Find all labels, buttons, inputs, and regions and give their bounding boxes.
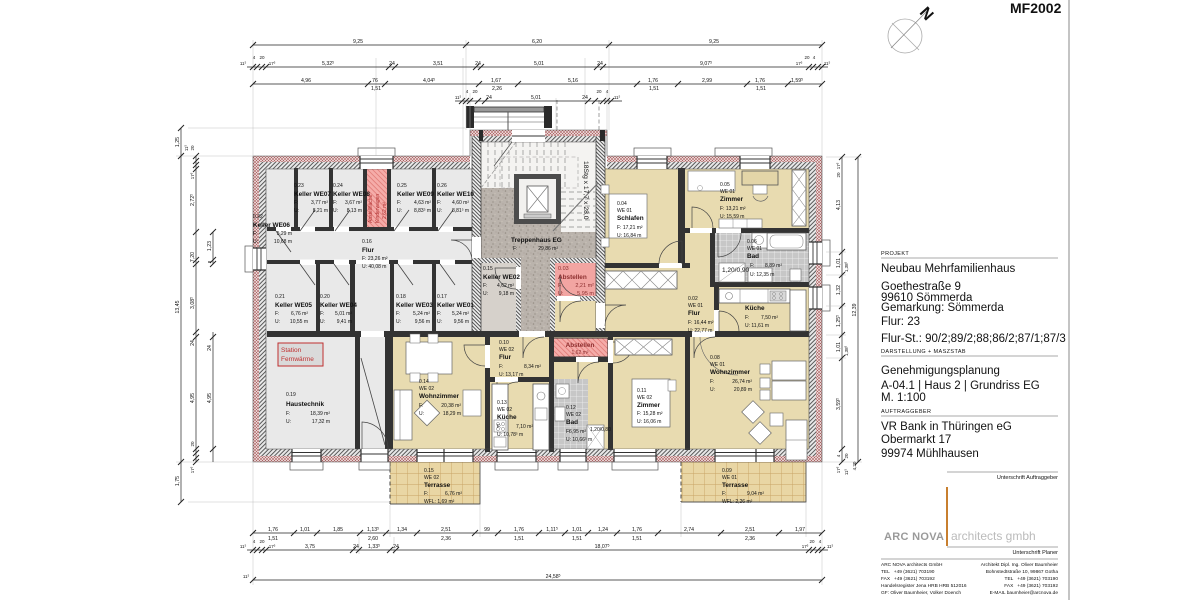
- svg-text:4,20: 4,20: [852, 461, 857, 470]
- svg-text:24: 24: [582, 95, 588, 101]
- svg-text:Fernwärme: Fernwärme: [281, 356, 314, 363]
- svg-text:12,39: 12,39: [852, 303, 858, 316]
- svg-text:F:: F:: [419, 403, 423, 409]
- svg-text:1,51: 1,51: [371, 86, 381, 92]
- svg-text:2,36: 2,36: [745, 536, 755, 542]
- svg-text:E-MAIL baumheier@arcnova.de: E-MAIL baumheier@arcnova.de: [990, 590, 1059, 596]
- svg-text:2,62 m²: 2,62 m²: [382, 202, 388, 219]
- svg-text:F:: F:: [513, 246, 517, 252]
- svg-text:U:: U:: [320, 319, 325, 325]
- svg-text:1,85: 1,85: [333, 527, 343, 533]
- svg-text:Abstellen: Abstellen: [566, 342, 595, 349]
- svg-text:1,20/0,80: 1,20/0,80: [590, 427, 611, 433]
- svg-text:1,20/0,90: 1,20/0,90: [722, 267, 749, 274]
- svg-text:20: 20: [836, 172, 841, 178]
- svg-text:U:: U:: [333, 208, 338, 214]
- svg-text:20,89 m: 20,89 m: [734, 387, 752, 393]
- svg-text:0.16: 0.16: [362, 239, 372, 245]
- svg-text:0.05: 0.05: [720, 182, 730, 188]
- svg-text:0.12: 0.12: [566, 405, 576, 411]
- svg-text:9,18 m: 9,18 m: [499, 291, 514, 297]
- svg-text:4,62 m²: 4,62 m²: [497, 283, 514, 289]
- svg-text:U: 16,06 m: U: 16,06 m: [637, 419, 661, 425]
- svg-text:76: 76: [372, 78, 378, 84]
- svg-text:0.22: 0.22: [253, 214, 263, 220]
- svg-text:U: 12,35 m: U: 12,35 m: [750, 272, 774, 278]
- svg-text:5,16: 5,16: [568, 78, 578, 84]
- svg-text:Terrasse: Terrasse: [722, 482, 749, 489]
- svg-text:WE 02: WE 02: [424, 475, 439, 481]
- svg-text:9,41 m: 9,41 m: [337, 319, 352, 325]
- svg-text:0.14: 0.14: [419, 379, 429, 385]
- svg-text:0.06: 0.06: [747, 239, 757, 245]
- svg-text:F:: F:: [396, 311, 400, 317]
- svg-text:1,97: 1,97: [795, 527, 805, 533]
- svg-text:U: 10,785 m: U: 10,785 m: [497, 431, 523, 438]
- svg-text:GF: Oliver Baumheier, Volker D: GF: Oliver Baumheier, Volker Doench: [881, 590, 961, 596]
- svg-text:8,815 m: 8,815 m: [452, 207, 469, 214]
- svg-text:Flur: Flur: [499, 354, 512, 361]
- svg-text:1,01: 1,01: [572, 527, 582, 533]
- svg-text:5,01 m²: 5,01 m²: [335, 311, 352, 317]
- svg-text:26,74 m²: 26,74 m²: [732, 379, 752, 385]
- svg-text:20: 20: [809, 539, 815, 544]
- svg-text:1,76: 1,76: [648, 78, 658, 84]
- svg-text:A-04.1 | Haus 2 | Grundriss EG: A-04.1 | Haus 2 | Grundriss EG: [881, 380, 1040, 392]
- svg-text:8,34 m²: 8,34 m²: [524, 364, 541, 370]
- svg-text:F:: F:: [745, 315, 749, 321]
- svg-text:6,76 m²: 6,76 m²: [445, 491, 462, 497]
- svg-text:WE 01: WE 01: [747, 246, 762, 252]
- svg-text:2,74: 2,74: [684, 527, 694, 533]
- svg-text:Flur: Flur: [688, 310, 701, 317]
- svg-text:0.03: 0.03: [558, 266, 569, 272]
- svg-text:13,45: 13,45: [175, 300, 181, 313]
- svg-text:3,67 m²: 3,67 m²: [345, 200, 362, 206]
- svg-text:7,10 m²: 7,10 m²: [516, 424, 533, 430]
- svg-text:U:: U:: [275, 319, 280, 325]
- svg-text:Zimmer: Zimmer: [720, 196, 744, 203]
- svg-text:F: 15,28 m²: F: 15,28 m²: [637, 411, 663, 417]
- svg-text:Bad: Bad: [747, 253, 759, 260]
- svg-text:F:: F:: [497, 424, 501, 430]
- svg-text:1,51: 1,51: [514, 536, 524, 542]
- svg-text:ARC NOVA architects GmbH: ARC NOVA architects GmbH: [881, 562, 943, 568]
- svg-text:Flur-St.: 90/2;89/2;88;86/2;87: Flur-St.: 90/2;89/2;88;86/2;87/1;87/3: [881, 333, 1066, 345]
- svg-text:20,38 m²: 20,38 m²: [441, 403, 461, 409]
- svg-text:Unterschrift Auftraggeber: Unterschrift Auftraggeber: [997, 475, 1058, 481]
- svg-text:F:: F:: [275, 311, 279, 317]
- svg-text:U: 10,665 m: U: 10,665 m: [566, 436, 592, 443]
- svg-text:U:: U:: [558, 291, 564, 297]
- svg-text:Gemarkung: Sömmerda: Gemarkung: Sömmerda: [881, 302, 1004, 314]
- svg-text:24,585: 24,585: [546, 573, 561, 580]
- svg-text:1,76: 1,76: [632, 527, 642, 533]
- svg-text:0.26: 0.26: [437, 183, 447, 189]
- svg-text:Keller WE03: Keller WE03: [396, 302, 433, 309]
- svg-text:1,25: 1,25: [175, 137, 181, 147]
- svg-text:9,04 m²: 9,04 m²: [747, 491, 764, 497]
- svg-text:1,23: 1,23: [207, 241, 213, 251]
- svg-text:9,56 m: 9,56 m: [415, 319, 430, 325]
- svg-text:Keller WE09: Keller WE09: [397, 191, 434, 198]
- svg-text:U:: U:: [437, 319, 442, 325]
- svg-text:3,77 m²: 3,77 m²: [311, 200, 328, 206]
- svg-text:4,95: 4,95: [190, 393, 196, 403]
- svg-text:Keller WE02: Keller WE02: [483, 274, 520, 281]
- svg-text:20: 20: [190, 145, 195, 151]
- svg-text:20: 20: [259, 55, 265, 60]
- svg-text:6,20: 6,20: [532, 39, 542, 45]
- svg-text:Keller WE04: Keller WE04: [320, 302, 357, 309]
- svg-text:U:: U:: [397, 208, 402, 214]
- svg-text:Wohnzimmer: Wohnzimmer: [710, 369, 751, 376]
- svg-text:FAX +49 (3621) 703192: FAX +49 (3621) 703192: [881, 576, 935, 582]
- svg-text:F:: F:: [499, 364, 503, 370]
- svg-text:17,32 m: 17,32 m: [312, 419, 330, 425]
- svg-text:Obermarkt 17: Obermarkt 17: [881, 434, 951, 446]
- svg-text:Haustechnik: Haustechnik: [286, 401, 324, 408]
- svg-text:Küche: Küche: [497, 414, 517, 421]
- svg-text:F:: F:: [333, 200, 337, 206]
- svg-text:1,32: 1,32: [836, 285, 842, 295]
- svg-text:WE 02: WE 02: [637, 395, 652, 401]
- svg-text:F: 16,44 m²: F: 16,44 m²: [688, 320, 714, 326]
- svg-text:24: 24: [393, 544, 399, 550]
- svg-text:Flur: 23: Flur: 23: [881, 316, 920, 328]
- svg-text:0.17: 0.17: [437, 294, 447, 300]
- svg-text:FAX +49 (3621) 703192: FAX +49 (3621) 703192: [1004, 583, 1058, 589]
- svg-text:Küche: Küche: [745, 305, 765, 312]
- svg-text:1,76: 1,76: [268, 527, 278, 533]
- svg-text:WE 01: WE 01: [720, 189, 735, 195]
- svg-text:3,51: 3,51: [433, 61, 443, 67]
- svg-text:1,51: 1,51: [632, 536, 642, 542]
- svg-text:F:: F:: [558, 283, 563, 289]
- svg-text:1,01: 1,01: [836, 342, 842, 352]
- svg-text:20: 20: [844, 453, 849, 459]
- svg-text:WE 02: WE 02: [566, 412, 581, 418]
- svg-text:1,62 m²: 1,62 m²: [572, 350, 589, 356]
- svg-text:0.02: 0.02: [688, 296, 698, 302]
- svg-text:0.24: 0.24: [333, 183, 343, 189]
- svg-text:0.15: 0.15: [483, 266, 493, 272]
- svg-text:1,76: 1,76: [755, 78, 765, 84]
- svg-text:F:: F:: [710, 379, 714, 385]
- svg-text:F:: F:: [286, 411, 290, 417]
- svg-text:2,60: 2,60: [368, 536, 378, 542]
- svg-text:U: 22,77 m: U: 22,77 m: [688, 328, 712, 334]
- svg-text:0.09: 0.09: [722, 468, 732, 474]
- svg-text:5,01: 5,01: [531, 95, 541, 101]
- svg-text:9,25: 9,25: [709, 39, 719, 45]
- svg-text:0.25: 0.25: [397, 183, 407, 189]
- svg-text:7,50 m²: 7,50 m²: [761, 315, 778, 321]
- svg-text:1,51: 1,51: [756, 86, 766, 92]
- svg-text:Wohnzimmer: Wohnzimmer: [419, 393, 460, 400]
- svg-text:8,21 m: 8,21 m: [313, 208, 328, 214]
- svg-text:Bad: Bad: [566, 419, 578, 426]
- svg-text:WE 01: WE 01: [617, 208, 632, 214]
- svg-text:ARC NOVA: ARC NOVA: [884, 531, 944, 543]
- svg-text:U:: U:: [710, 387, 715, 393]
- svg-text:Handelsregister Jena HRB HRB 5: Handelsregister Jena HRB HRB 512016: [881, 583, 967, 589]
- svg-text:Keller WE08: Keller WE08: [333, 191, 370, 198]
- svg-text:8,13 m: 8,13 m: [347, 208, 362, 214]
- svg-text:24: 24: [475, 61, 481, 67]
- svg-text:PROJEKT: PROJEKT: [881, 251, 909, 257]
- svg-text:0.08: 0.08: [710, 355, 720, 361]
- svg-text:0.13: 0.13: [497, 400, 507, 406]
- svg-text:U:: U:: [419, 411, 424, 417]
- svg-text:0.23: 0.23: [294, 183, 304, 189]
- svg-text:Kinderwagen: Kinderwagen: [375, 194, 381, 223]
- svg-text:2,99: 2,99: [702, 78, 712, 84]
- svg-text:U: 40,08 m: U: 40,08 m: [362, 264, 386, 270]
- svg-text:1,01: 1,01: [836, 258, 842, 268]
- svg-text:Genehmigungsplanung: Genehmigungsplanung: [881, 365, 1000, 377]
- svg-text:Abstellfläche: Abstellfläche: [368, 194, 374, 223]
- svg-text:Neubau Mehrfamilienhaus: Neubau Mehrfamilienhaus: [881, 263, 1015, 275]
- svg-text:6,95 m²: 6,95 m²: [569, 429, 586, 435]
- svg-text:F: 13,21 m²: F: 13,21 m²: [720, 206, 746, 212]
- svg-text:WE 01: WE 01: [710, 362, 725, 368]
- svg-text:Treppenhaus EG: Treppenhaus EG: [511, 237, 562, 244]
- svg-text:4,96: 4,96: [301, 78, 311, 84]
- svg-text:Keller WE10: Keller WE10: [437, 191, 474, 198]
- svg-text:F:: F:: [437, 200, 441, 206]
- svg-text:1,34: 1,34: [397, 527, 407, 533]
- svg-text:0.19: 0.19: [286, 392, 296, 398]
- svg-text:4,63 m²: 4,63 m²: [414, 200, 431, 206]
- svg-text:1,51: 1,51: [649, 86, 659, 92]
- svg-text:Terrasse: Terrasse: [424, 482, 451, 489]
- svg-text:Schlafen: Schlafen: [617, 215, 644, 222]
- svg-text:0.18: 0.18: [396, 294, 406, 300]
- svg-text:24: 24: [486, 95, 492, 101]
- svg-text:F:: F:: [722, 491, 726, 497]
- svg-text:4,60 m²: 4,60 m²: [452, 200, 469, 206]
- svg-text:U:: U:: [286, 419, 291, 425]
- svg-text:24: 24: [207, 345, 213, 351]
- svg-text:2,26: 2,26: [492, 86, 502, 92]
- svg-text:VR Bank in Thüringen eG: VR Bank in Thüringen eG: [881, 421, 1012, 433]
- svg-text:20: 20: [259, 539, 265, 544]
- svg-text:U: 11,61 m: U: 11,61 m: [745, 323, 769, 329]
- svg-text:1,24: 1,24: [598, 527, 608, 533]
- svg-text:U: 15,59 m: U: 15,59 m: [720, 214, 744, 220]
- svg-text:1,67: 1,67: [491, 78, 501, 84]
- svg-text:9,56 m: 9,56 m: [454, 319, 469, 325]
- svg-text:TEL +49 (3621) 703190: TEL +49 (3621) 703190: [1005, 576, 1059, 582]
- svg-text:5,01: 5,01: [534, 61, 544, 67]
- svg-text:M. 1:100: M. 1:100: [881, 392, 926, 404]
- svg-text:U:: U:: [294, 208, 299, 214]
- svg-text:4,13: 4,13: [836, 200, 842, 210]
- svg-text:F: 23,26 m²: F: 23,26 m²: [362, 256, 388, 262]
- svg-text:5,29 m: 5,29 m: [277, 231, 292, 237]
- svg-text:8,89 m²: 8,89 m²: [765, 263, 782, 269]
- svg-text:1,51: 1,51: [572, 536, 582, 542]
- svg-text:F:: F:: [424, 491, 428, 497]
- svg-text:F:: F:: [437, 311, 441, 317]
- svg-text:F:: F:: [320, 311, 324, 317]
- svg-text:29,86 m²: 29,86 m²: [538, 246, 558, 252]
- svg-text:2,51: 2,51: [745, 527, 755, 533]
- svg-text:Architekt Dipl. Ing. Oliver Ba: Architekt Dipl. Ing. Oliver Baumheier: [981, 562, 1059, 568]
- svg-text:24: 24: [389, 61, 395, 67]
- svg-text:Bohnstedtstraße 10, 99867 Goth: Bohnstedtstraße 10, 99867 Gotha: [986, 569, 1059, 575]
- svg-text:8,835 m: 8,835 m: [414, 207, 431, 214]
- svg-text:WFL: 2,26 m²: WFL: 2,26 m²: [722, 499, 753, 505]
- svg-text:5,95 m: 5,95 m: [577, 291, 594, 297]
- svg-text:2,51: 2,51: [441, 527, 451, 533]
- svg-text:0.15: 0.15: [424, 468, 434, 474]
- svg-text:WE 02: WE 02: [497, 407, 512, 413]
- svg-text:2,36: 2,36: [441, 536, 451, 542]
- svg-text:Abstellen: Abstellen: [558, 274, 587, 281]
- svg-text:5,24 m²: 5,24 m²: [452, 311, 469, 317]
- svg-text:Keller WE01: Keller WE01: [437, 302, 474, 309]
- svg-text:0.04: 0.04: [617, 201, 627, 207]
- svg-text:F:: F:: [483, 283, 487, 289]
- svg-text:99: 99: [484, 527, 490, 533]
- svg-text:24: 24: [353, 544, 359, 550]
- svg-text:0.20: 0.20: [320, 294, 330, 300]
- svg-text:24: 24: [597, 61, 603, 67]
- svg-text:WE 02: WE 02: [499, 347, 514, 353]
- svg-text:WE 01: WE 01: [722, 475, 737, 481]
- svg-text:WFL: 1,69 m²: WFL: 1,69 m²: [424, 499, 455, 505]
- svg-text:20: 20: [596, 89, 602, 94]
- svg-text:U: 16,84 m: U: 16,84 m: [617, 233, 641, 239]
- svg-text:7,20: 7,20: [190, 252, 196, 262]
- svg-text:1,76: 1,76: [514, 527, 524, 533]
- svg-text:0.10: 0.10: [499, 340, 509, 346]
- svg-text:U: 13,17 m: U: 13,17 m: [499, 372, 523, 378]
- svg-text:18Stg x 17,7 x 28,0: 18Stg x 17,7 x 28,0: [582, 161, 589, 220]
- svg-text:DARSTELLUNG + MASZSTAB: DARSTELLUNG + MASZSTAB: [881, 349, 966, 355]
- svg-text:MF2002: MF2002: [1010, 0, 1062, 16]
- svg-text:Keller WE07: Keller WE07: [294, 191, 331, 198]
- svg-text:18,29 m: 18,29 m: [443, 411, 461, 417]
- svg-text:TEL +49 (3621) 703190: TEL +49 (3621) 703190: [881, 569, 935, 575]
- svg-text:AUFTRAGGEBER: AUFTRAGGEBER: [881, 409, 931, 415]
- svg-text:20: 20: [804, 55, 810, 60]
- svg-text:Keller WE06: Keller WE06: [253, 222, 290, 229]
- svg-text:6,76 m²: 6,76 m²: [291, 311, 308, 317]
- svg-text:0.11: 0.11: [637, 388, 647, 394]
- svg-text:U:: U:: [483, 291, 488, 297]
- svg-text:0.21: 0.21: [275, 294, 285, 300]
- svg-text:3,75: 3,75: [305, 544, 315, 550]
- svg-text:9,25: 9,25: [353, 39, 363, 45]
- svg-text:18,39 m²: 18,39 m²: [310, 411, 330, 417]
- svg-text:5,24 m²: 5,24 m²: [413, 311, 430, 317]
- svg-text:10,68 m: 10,68 m: [274, 239, 292, 245]
- svg-text:F:: F:: [750, 263, 754, 269]
- svg-text:F: 17,21 m²: F: 17,21 m²: [617, 225, 643, 231]
- svg-text:Flur: Flur: [362, 247, 375, 254]
- svg-text:Keller WE05: Keller WE05: [275, 302, 312, 309]
- svg-text:F:: F:: [253, 231, 257, 237]
- svg-text:10,55 m: 10,55 m: [290, 319, 308, 325]
- svg-text:99974 Mühlhausen: 99974 Mühlhausen: [881, 448, 979, 460]
- svg-text:20: 20: [472, 89, 478, 94]
- svg-text:WE 02: WE 02: [419, 386, 434, 392]
- svg-text:18,075: 18,075: [595, 543, 610, 550]
- svg-text:20: 20: [190, 441, 195, 447]
- svg-text:F:: F:: [294, 200, 298, 206]
- svg-text:24: 24: [190, 340, 196, 346]
- svg-text:Station: Station: [281, 347, 302, 354]
- svg-text:4,95: 4,95: [207, 393, 213, 403]
- svg-text:U:: U:: [253, 239, 258, 245]
- svg-text:F:: F:: [397, 200, 401, 206]
- svg-text:Unterschrift Planer: Unterschrift Planer: [1012, 550, 1058, 556]
- svg-text:architects gmbh: architects gmbh: [951, 529, 1036, 543]
- svg-text:1,75: 1,75: [175, 476, 181, 486]
- svg-text:2,21 m²: 2,21 m²: [575, 283, 594, 289]
- svg-text:U:: U:: [437, 208, 442, 214]
- svg-text:1,51: 1,51: [268, 536, 278, 542]
- svg-text:WE 01: WE 01: [688, 303, 703, 309]
- svg-text:U:: U:: [396, 319, 401, 325]
- svg-text:1,01: 1,01: [300, 527, 310, 533]
- svg-text:Zimmer: Zimmer: [637, 402, 661, 409]
